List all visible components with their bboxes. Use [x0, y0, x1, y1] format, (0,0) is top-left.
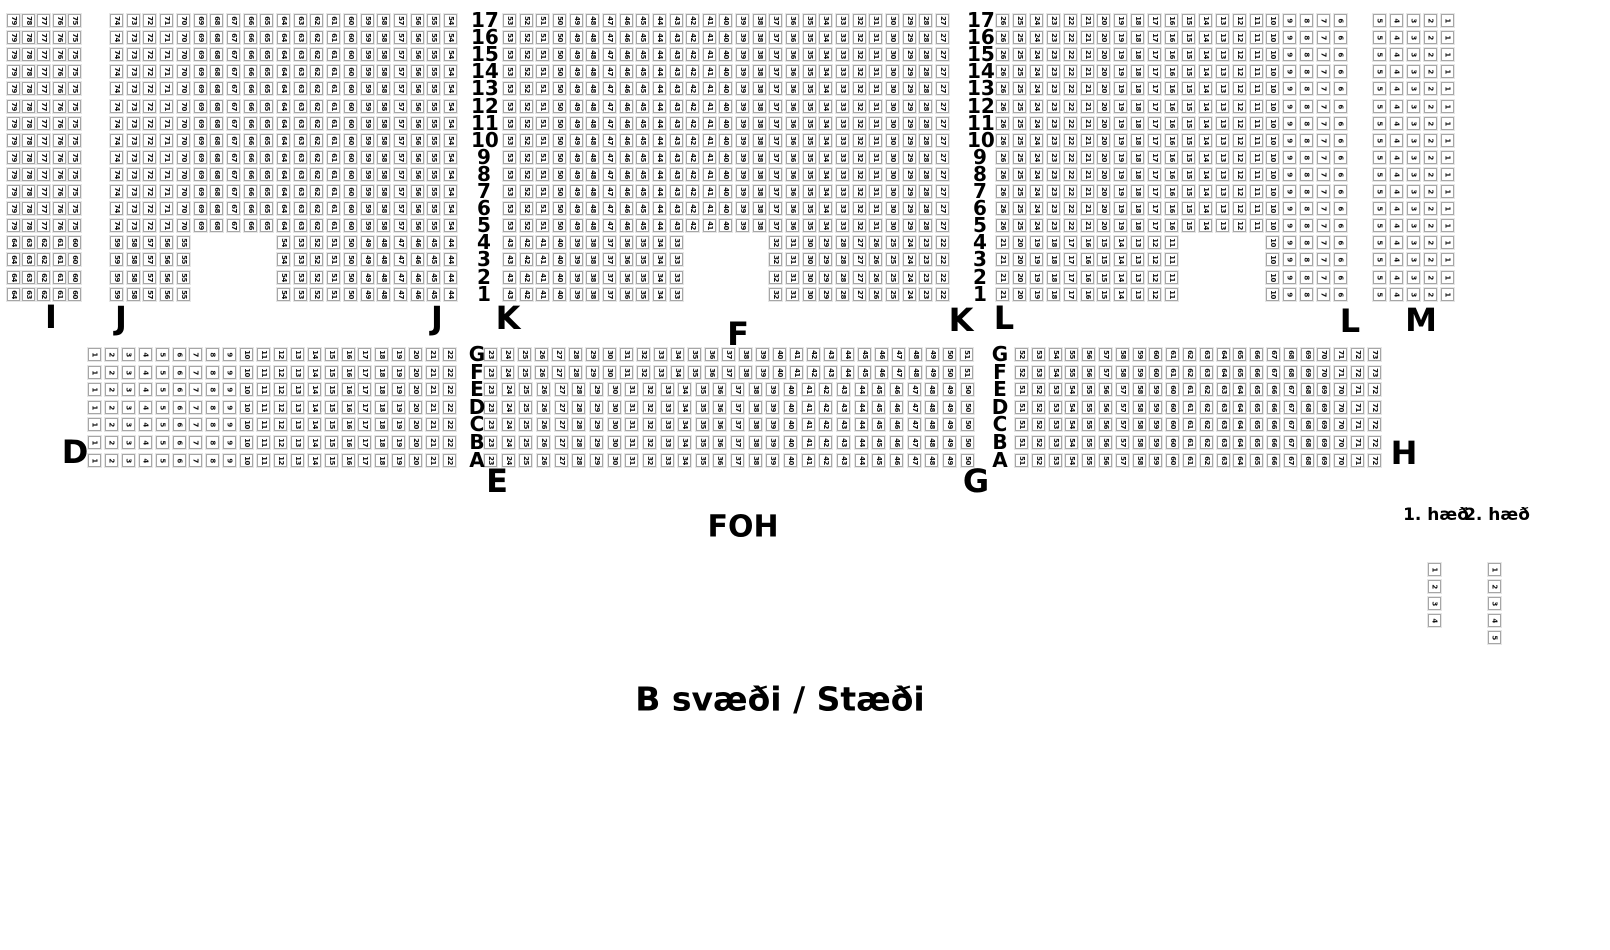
seat[interactable]: 19	[1114, 31, 1127, 44]
seat[interactable]: 18	[375, 401, 388, 414]
seat[interactable]: 4	[1390, 65, 1403, 78]
seat[interactable]: 41	[703, 14, 716, 27]
seat[interactable]: 67	[227, 100, 240, 113]
seat[interactable]: 67	[1267, 366, 1280, 379]
seat[interactable]: 38	[749, 383, 762, 396]
seat[interactable]: 24	[502, 401, 515, 414]
seat[interactable]: 53	[503, 202, 516, 215]
seat[interactable]: 13	[291, 383, 304, 396]
seat[interactable]: 61	[327, 151, 340, 164]
seat[interactable]: 13	[291, 348, 304, 361]
seat[interactable]: 45	[872, 454, 885, 467]
seat[interactable]: 42	[686, 117, 699, 130]
seat[interactable]: 54	[444, 100, 457, 113]
seat[interactable]: 54	[444, 134, 457, 147]
seat[interactable]: 48	[925, 454, 938, 467]
seat[interactable]: 60	[1149, 348, 1162, 361]
seat[interactable]: 53	[1049, 436, 1062, 449]
seat[interactable]: 16	[1165, 82, 1178, 95]
seat[interactable]: 49	[570, 134, 583, 147]
seat[interactable]: 43	[670, 185, 683, 198]
seat[interactable]: 11	[1250, 202, 1263, 215]
seat[interactable]: 17	[1148, 31, 1161, 44]
seat[interactable]: 15	[1097, 271, 1110, 284]
seat[interactable]: 68	[210, 100, 223, 113]
seat[interactable]: 25	[519, 418, 532, 431]
seat[interactable]: 7	[189, 383, 202, 396]
seat[interactable]: 20	[1097, 117, 1110, 130]
seat[interactable]: 63	[1217, 383, 1230, 396]
seat[interactable]: 67	[227, 168, 240, 181]
seat[interactable]: 30	[886, 65, 899, 78]
seat[interactable]: 5	[1373, 134, 1386, 147]
seat[interactable]: 65	[260, 65, 273, 78]
seat[interactable]: 19	[392, 348, 405, 361]
seat[interactable]: 15	[1182, 31, 1195, 44]
seat[interactable]: 5	[156, 418, 169, 431]
seat[interactable]: 33	[836, 82, 849, 95]
seat[interactable]: 37	[769, 82, 782, 95]
seat[interactable]: 21	[1081, 134, 1094, 147]
seat[interactable]: 18	[1131, 134, 1144, 147]
seat[interactable]: 64	[1233, 418, 1246, 431]
seat[interactable]: 62	[310, 168, 323, 181]
seat[interactable]: 28	[919, 65, 932, 78]
seat[interactable]: 78	[22, 202, 35, 215]
seat[interactable]: 76	[53, 168, 66, 181]
seat[interactable]: 33	[661, 418, 674, 431]
seat[interactable]: 62	[310, 185, 323, 198]
seat[interactable]: 27	[936, 31, 949, 44]
seat[interactable]: 56	[160, 236, 173, 249]
seat[interactable]: 57	[143, 253, 156, 266]
seat[interactable]: 37	[769, 65, 782, 78]
seat[interactable]: 78	[22, 151, 35, 164]
seat[interactable]: 61	[327, 65, 340, 78]
seat[interactable]: 65	[1250, 383, 1263, 396]
seat[interactable]: 7	[1317, 236, 1330, 249]
seat[interactable]: 9	[1283, 65, 1296, 78]
seat[interactable]: 71	[160, 31, 173, 44]
seat[interactable]: 56	[411, 82, 424, 95]
seat[interactable]: 38	[753, 82, 766, 95]
seat[interactable]: 52	[310, 236, 323, 249]
seat[interactable]: 35	[688, 348, 701, 361]
seat[interactable]: 41	[703, 117, 716, 130]
seat[interactable]: 64	[277, 168, 290, 181]
seat[interactable]: 72	[143, 168, 156, 181]
seat[interactable]: 17	[358, 454, 371, 467]
seat[interactable]: 28	[836, 288, 849, 301]
seat[interactable]: 7	[189, 454, 202, 467]
seat[interactable]: 16	[342, 454, 355, 467]
seat[interactable]: 14	[1199, 48, 1212, 61]
seat[interactable]: 17	[1148, 117, 1161, 130]
seat[interactable]: 64	[277, 65, 290, 78]
seat[interactable]: 28	[572, 454, 585, 467]
seat[interactable]: 45	[872, 401, 885, 414]
seat[interactable]: 63	[294, 14, 307, 27]
seat[interactable]: 6	[173, 401, 186, 414]
seat[interactable]: 1	[1441, 48, 1454, 61]
seat[interactable]: 63	[294, 134, 307, 147]
seat[interactable]: 60	[1149, 366, 1162, 379]
seat[interactable]: 42	[819, 454, 832, 467]
seat[interactable]: 59	[110, 253, 123, 266]
seat[interactable]: 50	[553, 151, 566, 164]
seat[interactable]: 53	[503, 134, 516, 147]
seat[interactable]: 58	[1116, 348, 1129, 361]
seat[interactable]: 14	[1199, 117, 1212, 130]
seat[interactable]: 58	[377, 185, 390, 198]
seat[interactable]: 38	[753, 117, 766, 130]
seat[interactable]: 41	[802, 383, 815, 396]
seat[interactable]: 34	[671, 366, 684, 379]
seat[interactable]: 50	[943, 366, 956, 379]
seat[interactable]: 71	[1334, 366, 1347, 379]
seat[interactable]: 41	[703, 202, 716, 215]
seat[interactable]: 10	[1266, 134, 1279, 147]
seat[interactable]: 57	[394, 48, 407, 61]
seat[interactable]: 53	[503, 31, 516, 44]
seat[interactable]: 6	[173, 454, 186, 467]
seat[interactable]: 34	[653, 236, 666, 249]
seat[interactable]: 12	[274, 401, 287, 414]
seat[interactable]: 46	[620, 100, 633, 113]
seat[interactable]: 68	[210, 31, 223, 44]
seat[interactable]: 71	[160, 219, 173, 232]
seat[interactable]: 3	[1407, 14, 1420, 27]
seat[interactable]: 63	[294, 48, 307, 61]
seat[interactable]: 5	[1373, 168, 1386, 181]
seat[interactable]: 71	[160, 65, 173, 78]
seat[interactable]: 37	[769, 134, 782, 147]
seat[interactable]: 4	[139, 348, 152, 361]
seat[interactable]: 28	[919, 31, 932, 44]
seat[interactable]: 17	[1148, 219, 1161, 232]
seat[interactable]: 14	[308, 436, 321, 449]
seat[interactable]: 66	[244, 31, 257, 44]
seat[interactable]: 49	[943, 454, 956, 467]
seat[interactable]: 24	[1030, 202, 1043, 215]
seat[interactable]: 42	[520, 288, 533, 301]
seat[interactable]: 32	[853, 219, 866, 232]
seat[interactable]: 18	[375, 454, 388, 467]
seat[interactable]: 35	[803, 151, 816, 164]
seat[interactable]: 33	[661, 401, 674, 414]
seat[interactable]: 15	[325, 401, 338, 414]
seat[interactable]: 19	[1114, 185, 1127, 198]
seat[interactable]: 63	[294, 100, 307, 113]
seat[interactable]: 30	[886, 100, 899, 113]
seat[interactable]: 8	[206, 418, 219, 431]
seat[interactable]: 26	[537, 418, 550, 431]
seat[interactable]: 45	[636, 134, 649, 147]
seat[interactable]: 52	[1015, 348, 1028, 361]
seat[interactable]: 42	[686, 168, 699, 181]
seat[interactable]: 49	[943, 383, 956, 396]
seat[interactable]: 18	[1131, 100, 1144, 113]
seat[interactable]: 64	[277, 134, 290, 147]
seat[interactable]: 48	[586, 202, 599, 215]
seat[interactable]: 31	[620, 348, 633, 361]
seat[interactable]: 18	[1047, 288, 1060, 301]
seat[interactable]: 27	[936, 117, 949, 130]
seat[interactable]: 51	[536, 48, 549, 61]
seat[interactable]: 1	[88, 383, 101, 396]
seat[interactable]: 70	[177, 168, 190, 181]
seat[interactable]: 12	[274, 348, 287, 361]
seat[interactable]: 26	[996, 82, 1009, 95]
seat[interactable]: 41	[703, 82, 716, 95]
seat[interactable]: 73	[127, 168, 140, 181]
seat[interactable]: 42	[807, 366, 820, 379]
seat[interactable]: 28	[919, 14, 932, 27]
seat[interactable]: 21	[1081, 14, 1094, 27]
seat[interactable]: 29	[903, 48, 916, 61]
seat[interactable]: 6	[1334, 14, 1347, 27]
seat[interactable]: 77	[37, 65, 50, 78]
seat[interactable]: 55	[427, 48, 440, 61]
seat[interactable]: 66	[244, 65, 257, 78]
seat[interactable]: 58	[377, 82, 390, 95]
seat[interactable]: 67	[1284, 401, 1297, 414]
seat[interactable]: 3	[122, 348, 135, 361]
seat[interactable]: 25	[1013, 202, 1026, 215]
seat[interactable]: 48	[586, 82, 599, 95]
seat[interactable]: 4	[139, 418, 152, 431]
seat[interactable]: 59	[1133, 366, 1146, 379]
seat[interactable]: 25	[1013, 14, 1026, 27]
seat[interactable]: 18	[1047, 236, 1060, 249]
seat[interactable]: 76	[53, 31, 66, 44]
seat[interactable]: 6	[1334, 65, 1347, 78]
seat[interactable]: 33	[670, 271, 683, 284]
seat[interactable]: 58	[377, 219, 390, 232]
seat[interactable]: 26	[996, 202, 1009, 215]
seat[interactable]: 69	[194, 151, 207, 164]
seat[interactable]: 5	[1488, 631, 1501, 644]
seat[interactable]: 3	[1407, 236, 1420, 249]
seat[interactable]: 51	[536, 14, 549, 27]
seat[interactable]: 3	[1407, 65, 1420, 78]
seat[interactable]: 20	[1097, 219, 1110, 232]
seat[interactable]: 25	[1013, 65, 1026, 78]
seat[interactable]: 22	[1064, 134, 1077, 147]
seat[interactable]: 20	[409, 436, 422, 449]
seat[interactable]: 24	[903, 236, 916, 249]
seat[interactable]: 61	[53, 271, 66, 284]
seat[interactable]: 51	[327, 236, 340, 249]
seat[interactable]: 34	[678, 401, 691, 414]
seat[interactable]: 36	[713, 454, 726, 467]
seat[interactable]: 32	[643, 383, 656, 396]
seat[interactable]: 9	[223, 401, 236, 414]
seat[interactable]: 44	[444, 288, 457, 301]
seat[interactable]: 33	[836, 185, 849, 198]
seat[interactable]: 73	[1368, 366, 1381, 379]
seat[interactable]: 59	[361, 65, 374, 78]
seat[interactable]: 27	[555, 436, 568, 449]
seat[interactable]: 57	[1099, 348, 1112, 361]
seat[interactable]: 11	[1250, 48, 1263, 61]
seat[interactable]: 72	[143, 134, 156, 147]
seat[interactable]: 56	[1099, 454, 1112, 467]
seat[interactable]: 15	[1097, 253, 1110, 266]
seat[interactable]: 34	[678, 418, 691, 431]
seat[interactable]: 18	[1131, 202, 1144, 215]
seat[interactable]: 57	[394, 185, 407, 198]
seat[interactable]: 54	[277, 288, 290, 301]
seat[interactable]: 56	[411, 65, 424, 78]
seat[interactable]: 40	[719, 31, 732, 44]
seat[interactable]: 21	[426, 418, 439, 431]
seat[interactable]: 29	[590, 454, 603, 467]
seat[interactable]: 19	[1114, 117, 1127, 130]
seat[interactable]: 69	[1317, 454, 1330, 467]
seat[interactable]: 53	[1032, 348, 1045, 361]
seat[interactable]: 30	[803, 288, 816, 301]
seat[interactable]: 41	[703, 134, 716, 147]
seat[interactable]: 5	[1373, 31, 1386, 44]
seat[interactable]: 53	[294, 253, 307, 266]
seat[interactable]: 58	[377, 202, 390, 215]
seat[interactable]: 54	[444, 202, 457, 215]
seat[interactable]: 48	[586, 100, 599, 113]
seat[interactable]: 49	[570, 168, 583, 181]
seat[interactable]: 44	[841, 366, 854, 379]
seat[interactable]: 38	[753, 65, 766, 78]
seat[interactable]: 19	[1114, 168, 1127, 181]
seat[interactable]: 77	[37, 185, 50, 198]
seat[interactable]: 7	[1317, 100, 1330, 113]
seat[interactable]: 22	[1064, 168, 1077, 181]
seat[interactable]: 4	[1390, 219, 1403, 232]
seat[interactable]: 10	[1266, 82, 1279, 95]
seat[interactable]: 3	[122, 436, 135, 449]
seat[interactable]: 59	[1149, 401, 1162, 414]
seat[interactable]: 6	[1334, 236, 1347, 249]
seat[interactable]: 12	[1233, 151, 1246, 164]
seat[interactable]: 51	[327, 253, 340, 266]
seat[interactable]: 2	[1424, 100, 1437, 113]
seat[interactable]: 57	[1116, 418, 1129, 431]
seat[interactable]: 28	[836, 253, 849, 266]
seat[interactable]: 61	[327, 168, 340, 181]
seat[interactable]: 58	[1133, 418, 1146, 431]
seat[interactable]: 17	[358, 401, 371, 414]
seat[interactable]: 15	[1182, 48, 1195, 61]
seat[interactable]: 25	[1013, 31, 1026, 44]
seat[interactable]: 18	[1131, 117, 1144, 130]
seat[interactable]: 7	[1317, 271, 1330, 284]
seat[interactable]: 14	[1199, 14, 1212, 27]
seat[interactable]: 75	[68, 134, 81, 147]
seat[interactable]: 16	[342, 366, 355, 379]
seat[interactable]: 47	[394, 271, 407, 284]
seat[interactable]: 30	[886, 151, 899, 164]
seat[interactable]: 1	[1441, 14, 1454, 27]
seat[interactable]: 27	[853, 236, 866, 249]
seat[interactable]: 42	[819, 418, 832, 431]
seat[interactable]: 31	[869, 100, 882, 113]
seat[interactable]: 47	[603, 219, 616, 232]
seat[interactable]: 4	[1390, 185, 1403, 198]
seat[interactable]: 6	[1334, 253, 1347, 266]
seat[interactable]: 75	[68, 168, 81, 181]
seat[interactable]: 44	[653, 151, 666, 164]
seat[interactable]: 34	[819, 14, 832, 27]
seat[interactable]: 1	[1441, 219, 1454, 232]
seat[interactable]: 50	[961, 401, 974, 414]
seat[interactable]: 77	[37, 48, 50, 61]
seat[interactable]: 44	[855, 401, 868, 414]
seat[interactable]: 19	[1114, 219, 1127, 232]
seat[interactable]: 68	[210, 14, 223, 27]
seat[interactable]: 34	[653, 253, 666, 266]
seat[interactable]: 37	[731, 383, 744, 396]
seat[interactable]: 14	[1199, 82, 1212, 95]
seat[interactable]: 63	[294, 82, 307, 95]
seat[interactable]: 55	[1065, 348, 1078, 361]
seat[interactable]: 77	[37, 82, 50, 95]
seat[interactable]: 2	[105, 454, 118, 467]
seat[interactable]: 36	[786, 151, 799, 164]
seat[interactable]: 9	[223, 383, 236, 396]
seat[interactable]: 16	[1081, 288, 1094, 301]
seat[interactable]: 11	[257, 454, 270, 467]
seat[interactable]: 48	[586, 168, 599, 181]
seat[interactable]: 34	[819, 65, 832, 78]
seat[interactable]: 77	[37, 168, 50, 181]
seat[interactable]: 72	[1368, 383, 1381, 396]
seat[interactable]: 36	[705, 348, 718, 361]
seat[interactable]: 50	[553, 48, 566, 61]
seat[interactable]: 21	[1081, 168, 1094, 181]
seat[interactable]: 31	[625, 454, 638, 467]
seat[interactable]: 51	[536, 117, 549, 130]
seat[interactable]: 18	[1047, 271, 1060, 284]
seat[interactable]: 25	[519, 383, 532, 396]
seat[interactable]: 33	[836, 202, 849, 215]
seat[interactable]: 30	[886, 185, 899, 198]
seat[interactable]: 41	[536, 271, 549, 284]
seat[interactable]: 19	[1114, 100, 1127, 113]
seat[interactable]: 36	[786, 65, 799, 78]
seat[interactable]: 55	[1082, 401, 1095, 414]
seat[interactable]: 62	[1200, 383, 1213, 396]
seat[interactable]: 34	[819, 151, 832, 164]
seat[interactable]: 1	[1441, 151, 1454, 164]
seat[interactable]: 3	[1407, 31, 1420, 44]
seat[interactable]: 63	[294, 151, 307, 164]
seat[interactable]: 63	[1200, 366, 1213, 379]
seat[interactable]: 1	[1441, 288, 1454, 301]
seat[interactable]: 17	[1148, 65, 1161, 78]
seat[interactable]: 40	[784, 418, 797, 431]
seat[interactable]: 66	[1267, 454, 1280, 467]
seat[interactable]: 44	[653, 14, 666, 27]
seat[interactable]: 24	[1030, 168, 1043, 181]
seat[interactable]: 17	[358, 348, 371, 361]
seat[interactable]: 64	[7, 253, 20, 266]
seat[interactable]: 38	[753, 151, 766, 164]
seat[interactable]: 9	[1283, 100, 1296, 113]
seat[interactable]: 4	[1390, 134, 1403, 147]
seat[interactable]: 26	[996, 151, 1009, 164]
seat[interactable]: 39	[736, 48, 749, 61]
seat[interactable]: 78	[22, 134, 35, 147]
